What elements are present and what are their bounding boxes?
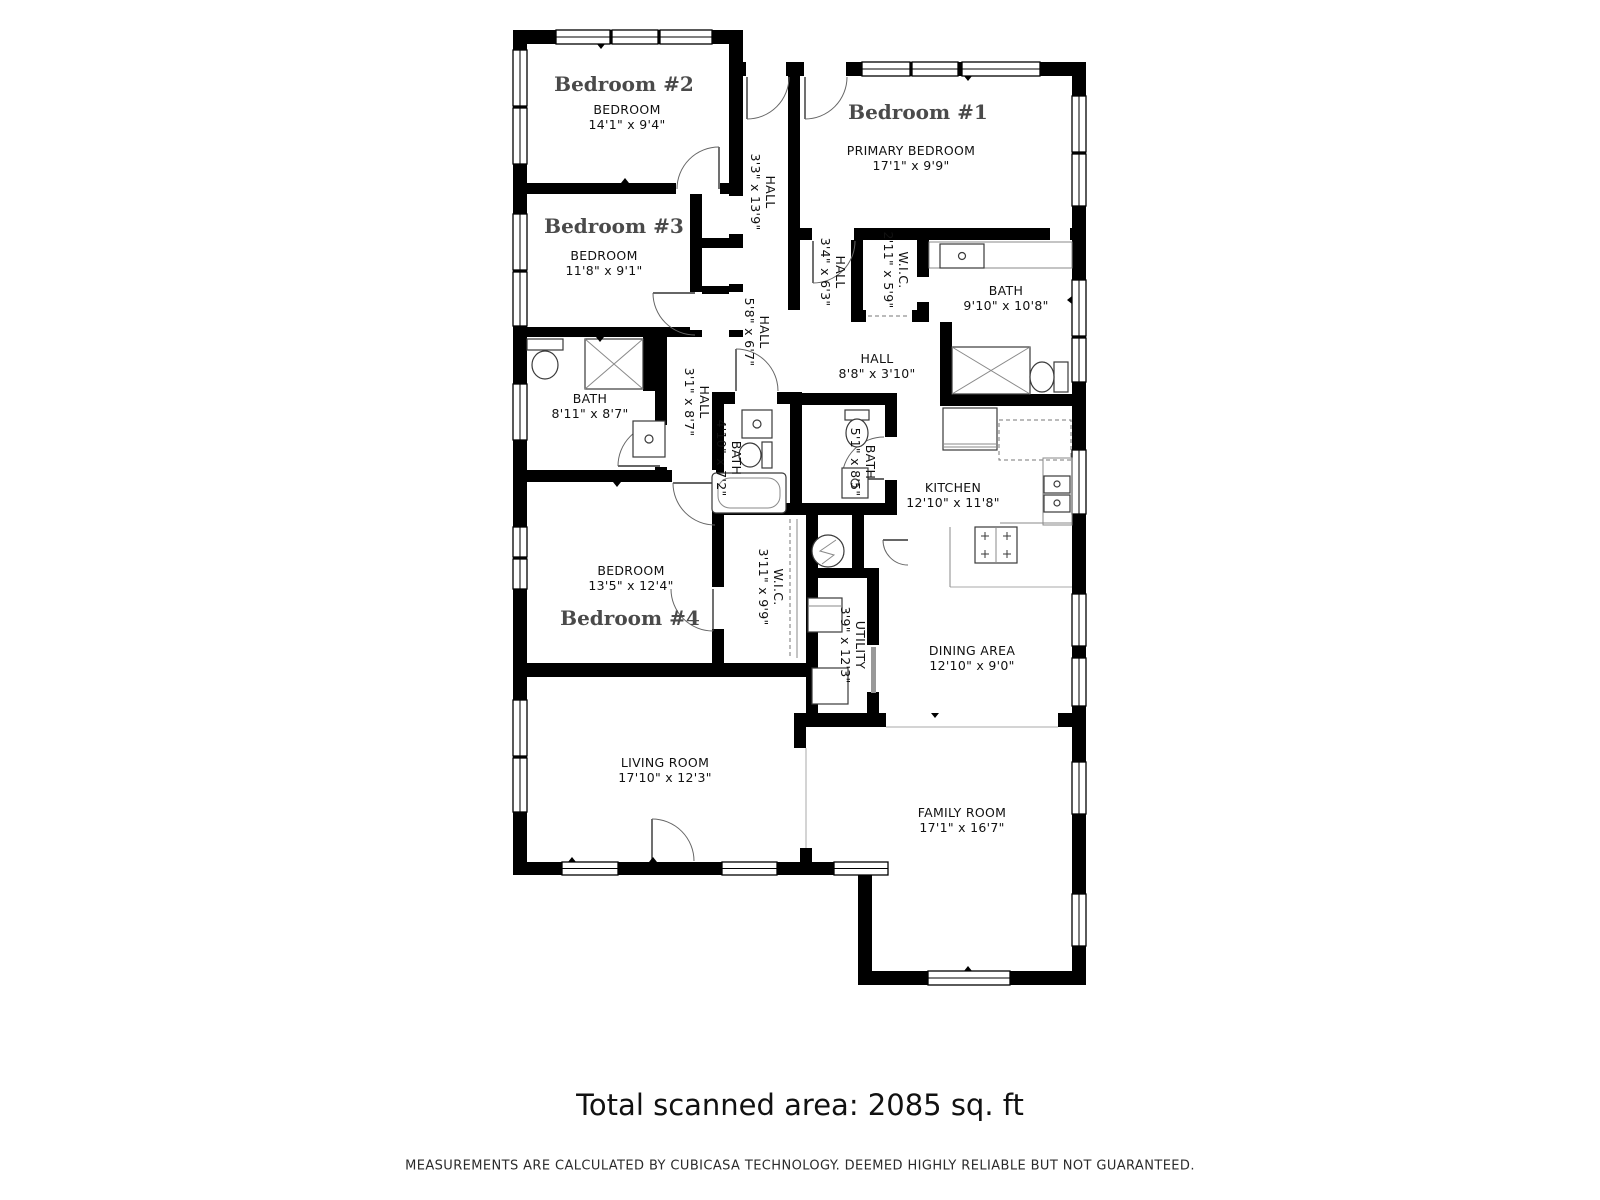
room-label-family: FAMILY ROOM17'1" x 16'7" xyxy=(918,805,1006,835)
floor-plan-drawing xyxy=(0,0,1600,1200)
room-label-bedroom3: BEDROOM11'8" x 9'1" xyxy=(565,248,642,278)
room-name-bedroom1: Bedroom #1 xyxy=(848,100,988,124)
room-label-bath-primary: BATH9'10" x 10'8" xyxy=(963,283,1048,313)
disclaimer-text: MEASUREMENTS ARE CALCULATED BY CUBICASA … xyxy=(405,1159,1195,1174)
room-label-hall-31: HALL3'1" x 8'7" xyxy=(682,368,712,437)
room-label-hall-main: HALL3'3" x 13'9" xyxy=(748,153,778,230)
sliding-door xyxy=(871,647,876,693)
room-name-bedroom3: Bedroom #3 xyxy=(544,214,684,238)
room-label-utility: UTILITY3'9" x 12'3" xyxy=(838,606,868,683)
room-label-hall-58: HALL5'8" x 6'7" xyxy=(742,298,772,367)
room-name-bedroom2: Bedroom #2 xyxy=(554,72,694,96)
toilet-icon xyxy=(1054,362,1068,392)
room-label-bath-811: BATH8'11" x 8'7" xyxy=(551,391,628,421)
room-label-bedroom4: BEDROOM13'5" x 12'4" xyxy=(588,563,673,593)
room-name-bedroom4: Bedroom #4 xyxy=(560,606,700,630)
room-label-wic-small: W.I.C.2'11" x 5'9" xyxy=(881,231,911,308)
washer-icon xyxy=(808,598,842,632)
upper-cabinet xyxy=(999,420,1071,460)
floor-plan-page: Bedroom #2 Bedroom #1 Bedroom #3 Bedroom… xyxy=(0,0,1600,1200)
room-label-hall-88: HALL8'8" x 3'10" xyxy=(838,351,915,381)
room-label-dining: DINING AREA12'10" x 9'0" xyxy=(929,643,1015,673)
water-heater-icon xyxy=(812,535,844,567)
toilet-icon xyxy=(762,442,772,468)
room-label-hall-34: HALL3'4" x 6'3" xyxy=(818,238,848,307)
room-label-bath-410: BATH4'10" x 7'2" xyxy=(714,419,744,496)
room-label-bedroom1: PRIMARY BEDROOM17'1" x 9'9" xyxy=(847,143,976,173)
total-area-text: Total scanned area: 2085 sq. ft xyxy=(576,1088,1024,1122)
room-label-bath-51: BATH5'1" x 8'5" xyxy=(848,428,878,497)
room-label-kitchen: KITCHEN12'10" x 11'8" xyxy=(906,480,1000,510)
room-label-living: LIVING ROOM17'10" x 12'3" xyxy=(618,755,712,785)
room-label-wic-large: W.I.C.3'11" x 9'9" xyxy=(756,548,786,625)
room-label-bedroom2: BEDROOM14'1" x 9'4" xyxy=(588,102,665,132)
walls-layer xyxy=(513,30,1086,985)
toilet-icon xyxy=(527,339,563,350)
